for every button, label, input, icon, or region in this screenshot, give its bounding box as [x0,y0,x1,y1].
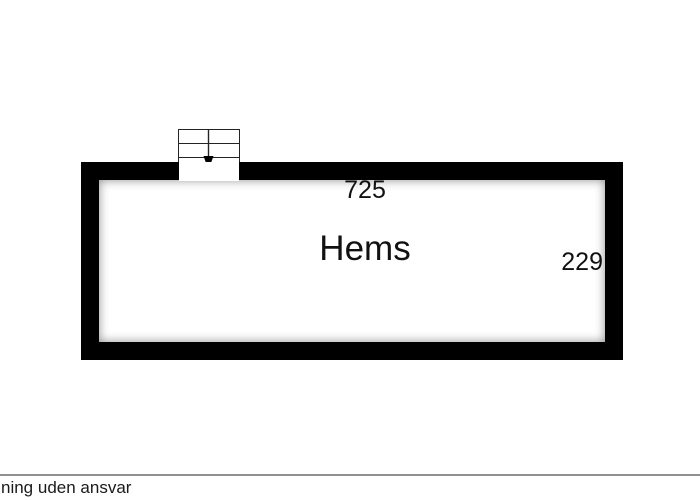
room-name-label: Hems [290,231,440,266]
stair-wall-opening [179,162,239,181]
floorplan-page: 725 Hems 229 ning uden ansvar [0,0,700,500]
dimension-height-label: 229 [503,250,603,274]
footer-divider [0,474,700,476]
dimension-width-label: 725 [315,178,415,202]
footer-disclaimer-text: ning uden ansvar [1,477,131,498]
